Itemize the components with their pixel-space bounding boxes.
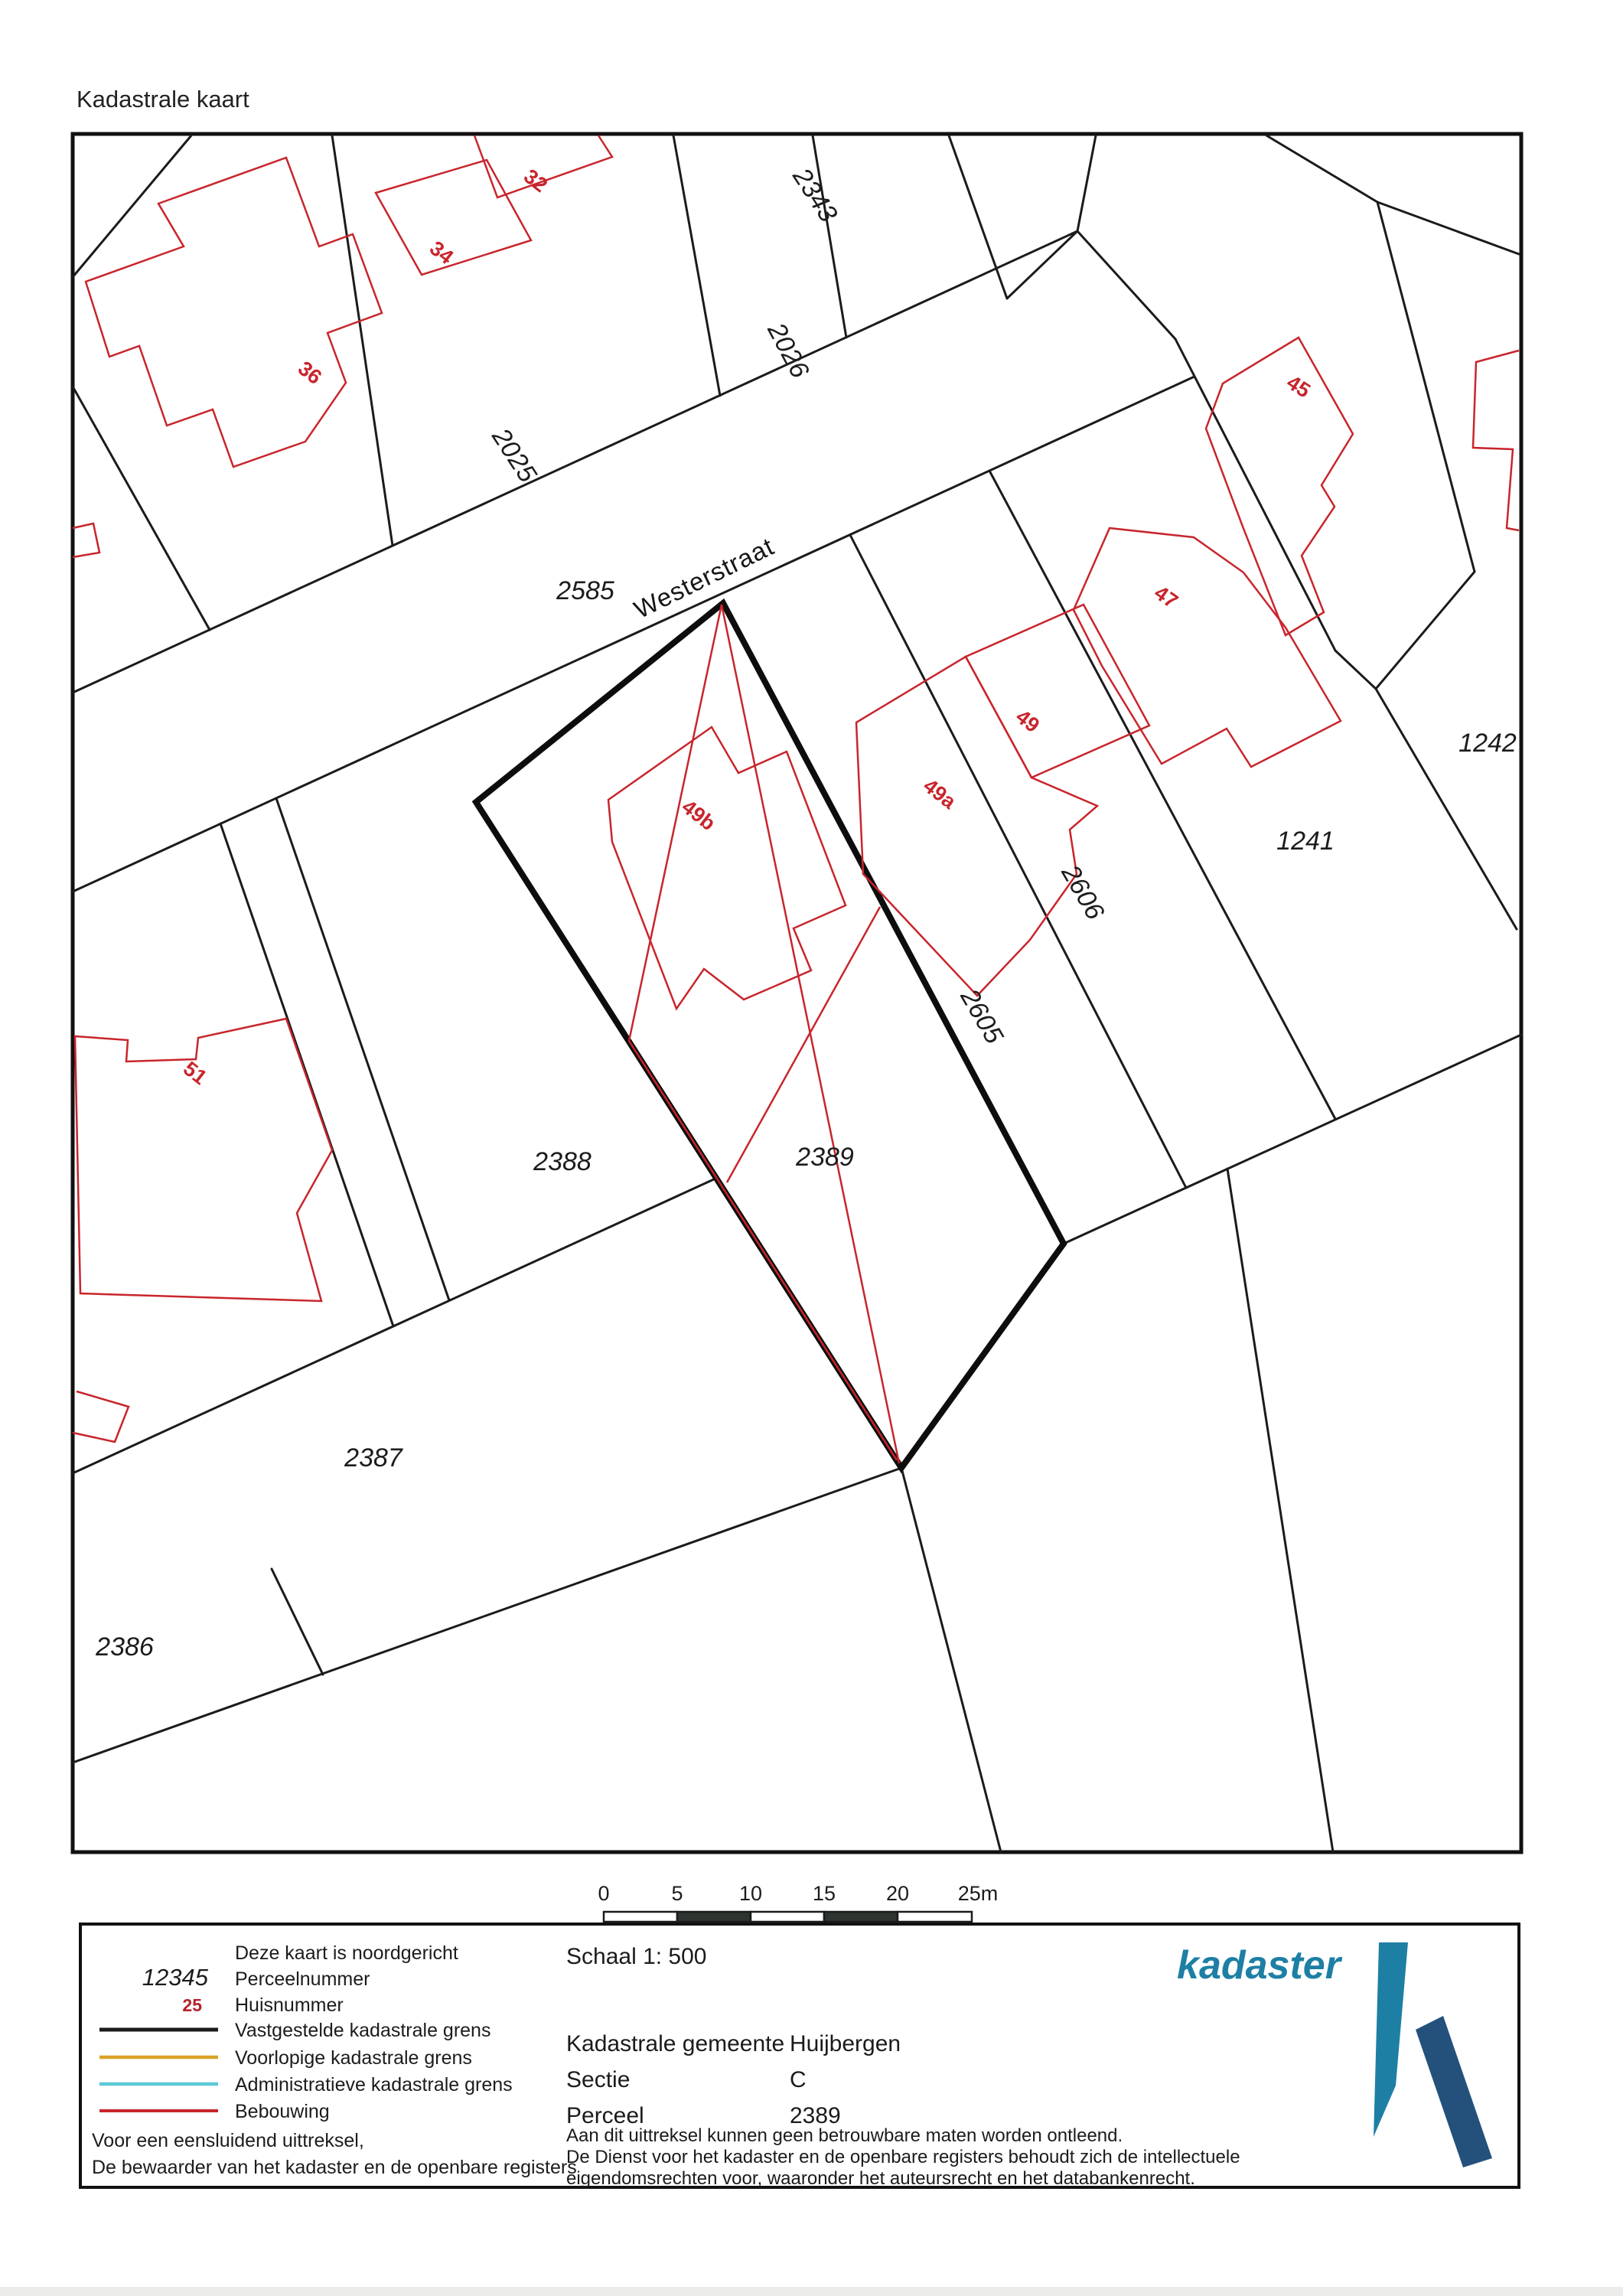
legend-north-note: Deze kaart is noordgericht — [235, 1942, 458, 1964]
legend-symbol-perceelnummer: 12345 — [142, 1964, 209, 1991]
legend-label-voorlopig: Voorlopige kadastrale grens — [235, 2047, 472, 2069]
info-label-gemeente: Kadastrale gemeente — [566, 2031, 784, 2056]
legend-symbol-huisnummer: 25 — [182, 1995, 202, 2015]
info-value-gemeente: Huijbergen — [790, 2031, 901, 2056]
legend-label-bebouwing: Bebouwing — [235, 2101, 330, 2122]
info-label-sectie: Sectie — [566, 2067, 630, 2092]
disclaimer-line-1: Aan dit uittreksel kunnen geen betrouwba… — [566, 2125, 1123, 2146]
parcel-label-1242: 1242 — [1458, 729, 1517, 758]
kadastral-map-page: Kadastrale kaart — [0, 0, 1623, 2296]
scale-bar: 0 5 10 15 20 25m — [598, 1882, 998, 1922]
legend-label-perceelnummer: Perceelnummer — [235, 1968, 370, 1990]
scale-tick-10: 10 — [739, 1882, 762, 1905]
parcel-label-2389: 2389 — [795, 1143, 854, 1172]
info-value-sectie: C — [790, 2067, 807, 2092]
attest-line-1: Voor een eensluidend uittreksel, — [92, 2130, 364, 2151]
disclaimer-line-3: eigendomsrechten voor, waaronder het aut… — [566, 2168, 1195, 2189]
parcel-label-2387: 2387 — [344, 1443, 403, 1473]
page-title: Kadastrale kaart — [77, 86, 249, 113]
scale-tick-25m: 25m — [958, 1882, 999, 1905]
parcel-label-2585: 2585 — [556, 576, 614, 605]
scale-tick-15: 15 — [813, 1882, 836, 1905]
map-canvas: Kadastrale kaart — [0, 0, 1623, 2296]
scale-tick-5: 5 — [671, 1882, 683, 1905]
legend-label-administratief: Administratieve kadastrale grens — [235, 2074, 513, 2095]
parcel-label-2386: 2386 — [95, 1632, 154, 1662]
parcel-label-1241: 1241 — [1276, 827, 1335, 856]
scale-bar-segments — [604, 1912, 972, 1922]
schaal-text: Schaal 1: 500 — [566, 1944, 706, 1969]
kadaster-logo-text: kadaster — [1177, 1943, 1343, 1988]
scale-tick-0: 0 — [598, 1882, 609, 1905]
disclaimer-line-2: De Dienst voor het kadaster en de openba… — [566, 2147, 1240, 2167]
legend-label-huisnummer: Huisnummer — [235, 1994, 344, 2016]
scale-tick-20: 20 — [886, 1882, 909, 1905]
attest-line-2: De bewaarder van het kadaster en de open… — [92, 2157, 577, 2178]
parcel-label-2388: 2388 — [533, 1147, 592, 1176]
legend-label-vastgesteld: Vastgestelde kadastrale grens — [235, 2020, 490, 2041]
scan-strip — [0, 2287, 1623, 2296]
